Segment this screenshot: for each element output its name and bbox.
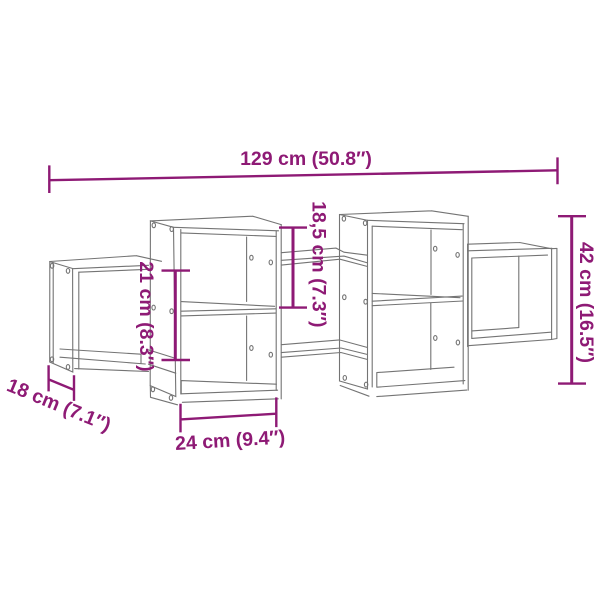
svg-text:42 cm (16.5″): 42 cm (16.5″)	[575, 242, 597, 363]
svg-text:21 cm (8.3″): 21 cm (8.3″)	[135, 261, 157, 371]
svg-text:129 cm (50.8″): 129 cm (50.8″)	[240, 148, 372, 170]
svg-text:18,5 cm (7.3″): 18,5 cm (7.3″)	[308, 201, 330, 327]
svg-text:24 cm (9.4″): 24 cm (9.4″)	[174, 426, 285, 455]
